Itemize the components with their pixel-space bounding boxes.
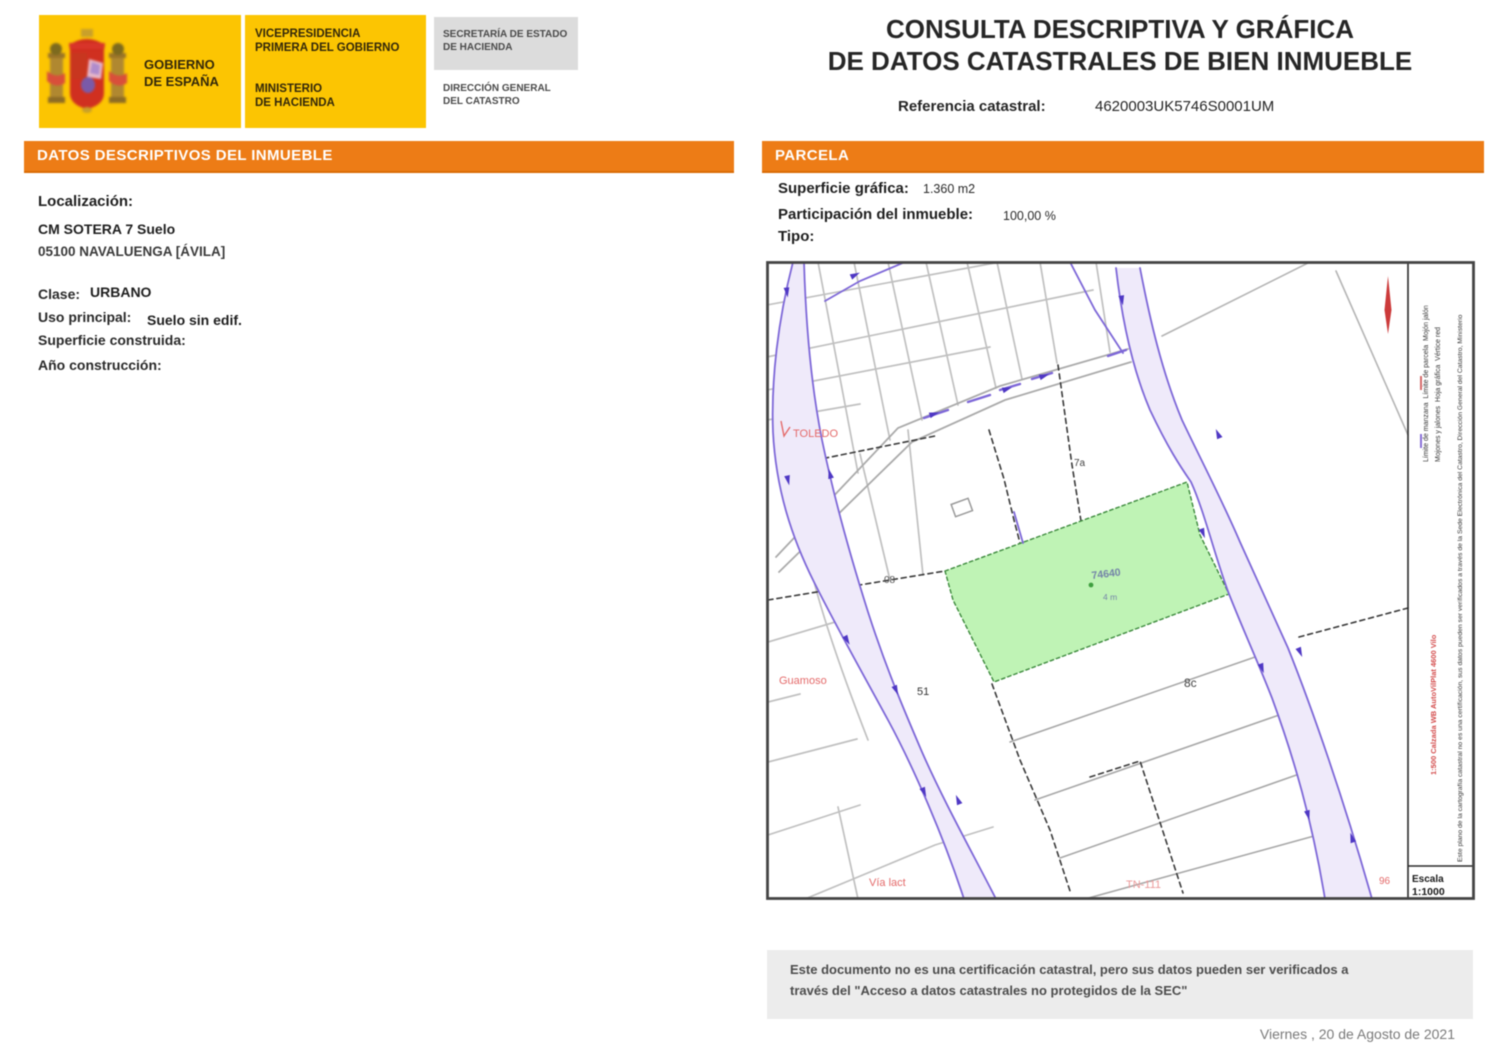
svg-text:08: 08: [884, 575, 896, 586]
svg-text:Este plano de la cartografía c: Este plano de la cartografía catastral n…: [1457, 314, 1464, 862]
svg-text:1:500 Calzada WB AutoVilPlat 4: 1:500 Calzada WB AutoVilPlat 4600 Vilo: [1429, 634, 1438, 775]
svg-text:Vía lact: Vía lact: [869, 877, 906, 889]
svg-text:51: 51: [917, 686, 929, 698]
svg-text:1:1000: 1:1000: [1412, 886, 1445, 898]
svg-text:Escala: Escala: [1412, 874, 1444, 885]
svg-text:TOLEDO: TOLEDO: [793, 428, 838, 440]
svg-text:4 m: 4 m: [1103, 592, 1117, 602]
svg-text:Guamoso: Guamoso: [779, 675, 827, 687]
svg-text:8c: 8c: [1184, 676, 1197, 690]
svg-text:96: 96: [1379, 876, 1391, 887]
svg-text:7a: 7a: [1074, 458, 1086, 469]
svg-text:TN-111: TN-111: [1126, 879, 1161, 891]
svg-text:Límite de manzana Límite de p: Límite de manzana Límite de parcela Mojó…: [1423, 305, 1430, 462]
svg-text:Mojones y jalones Hoja gráfic: Mojones y jalones Hoja gráfica Vértice r…: [1435, 327, 1442, 462]
